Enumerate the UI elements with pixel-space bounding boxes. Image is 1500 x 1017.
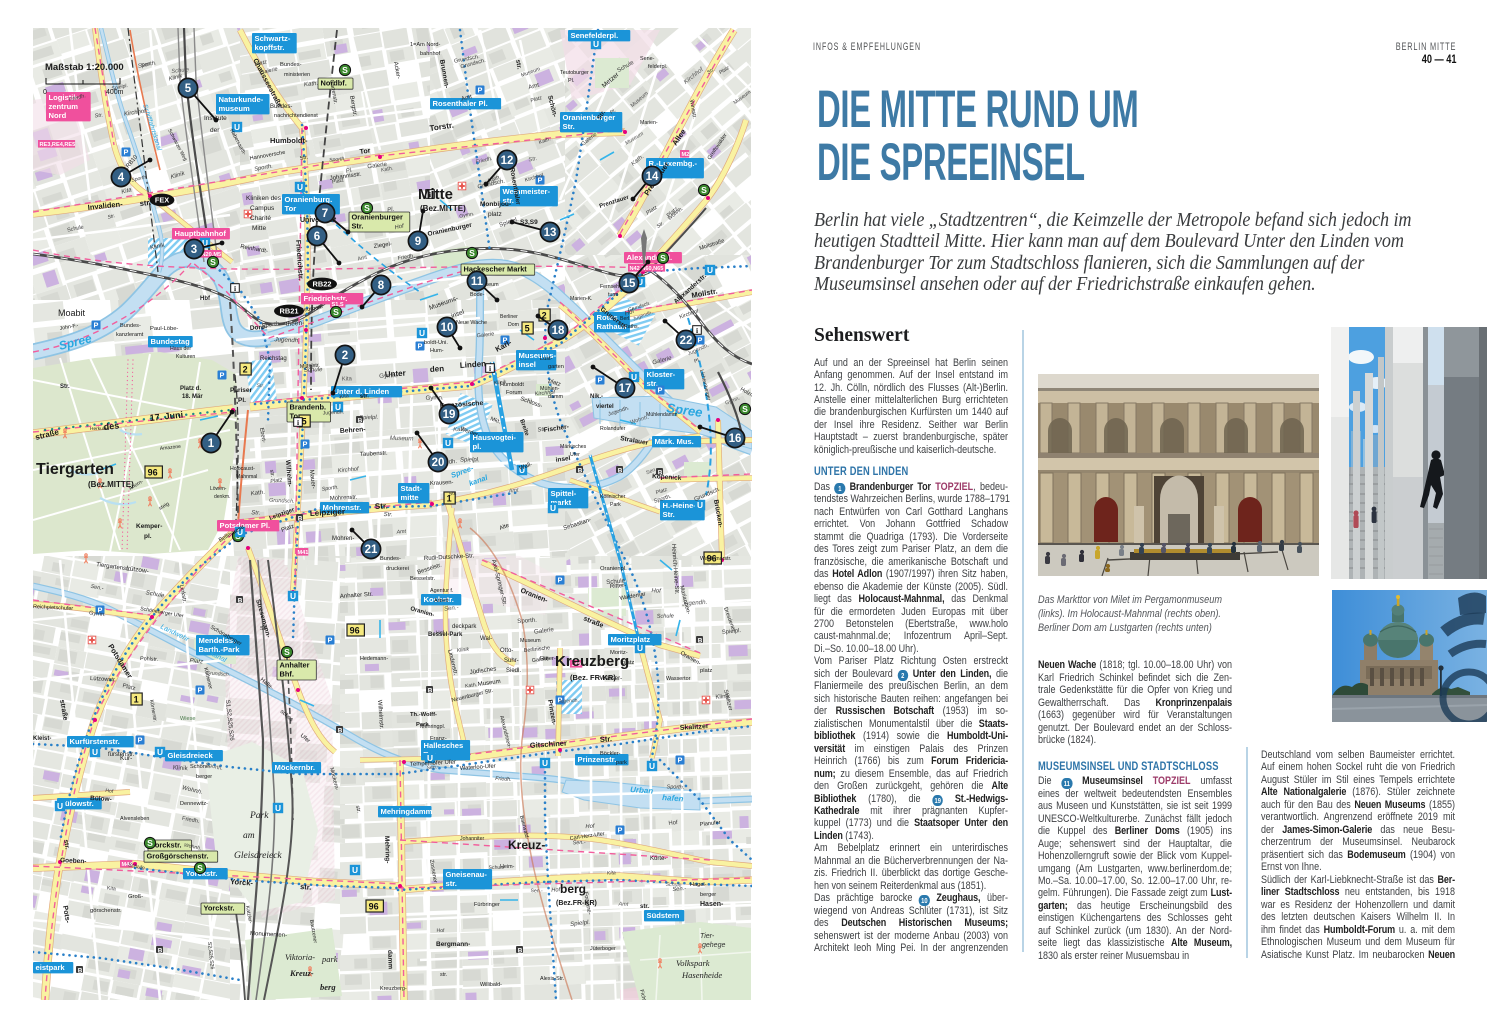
svg-text:P: P [198, 686, 203, 695]
svg-text:mitte: mitte [401, 493, 419, 502]
svg-text:i: i [234, 284, 236, 293]
svg-text:Str.: Str. [448, 490, 456, 497]
svg-text:21: 21 [365, 544, 378, 556]
svg-text:Schwartz-: Schwartz- [255, 34, 291, 43]
svg-text:P: P [478, 86, 483, 95]
svg-text:S: S [210, 257, 216, 267]
svg-text:P: P [658, 386, 663, 395]
svg-text:Hof: Hof [437, 928, 446, 934]
svg-text:Str.: Str. [663, 510, 675, 519]
svg-text:Pariser: Pariser [230, 387, 253, 394]
svg-text:Str.: Str. [256, 383, 264, 389]
svg-text:Bundes-: Bundes- [280, 62, 302, 68]
svg-text:20: 20 [432, 457, 445, 469]
svg-text:Siedl.: Siedl. [506, 668, 521, 674]
svg-text:görschenstr.: görschenstr. [90, 908, 122, 914]
svg-text:Mühlendamm: Mühlendamm [646, 412, 677, 418]
svg-text:96: 96 [350, 626, 360, 636]
svg-text:Kita: Kita [107, 885, 117, 892]
svg-text:Moritz-: Moritz- [610, 650, 628, 656]
svg-text:Otto-: Otto- [500, 648, 513, 654]
svg-text:Barth.-Park: Barth.-Park [199, 645, 241, 654]
svg-text:Suhr-: Suhr- [504, 658, 519, 664]
svg-text:insel: insel [519, 360, 536, 369]
svg-text:platz: platz [700, 668, 712, 674]
svg-text:Sen.-: Sen.- [573, 840, 586, 847]
svg-text:Museum: Museum [390, 435, 414, 443]
svg-text:9: 9 [415, 236, 421, 248]
svg-text:Schule: Schule [489, 865, 505, 871]
svg-text:Goeben-: Goeben- [60, 857, 87, 865]
svg-text:14: 14 [646, 171, 659, 183]
svg-text:str.: str. [360, 393, 370, 400]
svg-text:P: P [678, 756, 683, 765]
svg-text:str.: str. [640, 904, 649, 910]
svg-text:Hedemann-: Hedemann- [360, 656, 388, 662]
svg-text:park: park [321, 954, 338, 964]
svg-text:berg: berg [320, 982, 336, 992]
svg-text:Weinmeister-: Weinmeister- [503, 187, 551, 196]
svg-text:Bergmann-: Bergmann- [436, 941, 470, 948]
svg-text:Charité: Charité [250, 215, 271, 222]
svg-text:Besselstr.: Besselstr. [410, 576, 436, 582]
svg-text:P: P [124, 148, 129, 157]
svg-text:fürstenstr.: fürstenstr. [108, 752, 135, 758]
svg-text:Tor: Tor [285, 204, 297, 213]
svg-text:Hasenheide: Hasenheide [681, 970, 722, 980]
svg-text:S: S [342, 65, 348, 75]
svg-text:U: U [550, 503, 556, 513]
svg-text:RB22: RB22 [313, 280, 332, 289]
svg-text:Oranienpl.: Oranienpl. [600, 566, 627, 572]
svg-text:Fernseh-: Fernseh- [600, 284, 621, 290]
svg-text:S: S [469, 248, 475, 258]
svg-text:Rolandufer: Rolandufer [600, 426, 626, 432]
svg-text:Amt: Amt [617, 901, 628, 907]
svg-text:P: P [94, 321, 99, 330]
svg-text:18: 18 [552, 325, 565, 337]
svg-text:15: 15 [623, 278, 636, 290]
svg-text:Grundsch.: Grundsch. [269, 498, 295, 505]
svg-text:Berliner: Berliner [500, 314, 518, 320]
svg-text:Th.-Wolff-: Th.-Wolff- [410, 712, 437, 718]
svg-text:Hagel-: Hagel- [690, 882, 707, 888]
svg-text:3: 3 [191, 244, 197, 256]
svg-text:(Bez.MITTE): (Bez.MITTE) [420, 204, 466, 213]
svg-text:S: S [364, 203, 370, 213]
svg-text:damm: damm [386, 950, 394, 970]
svg-text:zentrum: zentrum [49, 102, 79, 111]
svg-text:Willibald-: Willibald- [480, 982, 502, 988]
svg-text:Krausen-: Krausen- [430, 480, 454, 487]
svg-text:Kreuz-: Kreuz- [508, 838, 545, 852]
svg-text:Körte-: Körte- [650, 856, 666, 862]
svg-text:Platz d.: Platz d. [180, 386, 201, 392]
svg-text:Kita: Kita [339, 393, 349, 400]
svg-text:ministerien: ministerien [284, 72, 310, 78]
svg-text:B: B [578, 467, 583, 474]
svg-text:Jugendh.: Jugendh. [323, 409, 345, 416]
svg-text:Bülow-: Bülow- [90, 795, 112, 803]
svg-text:Hbf: Hbf [200, 296, 211, 302]
svg-text:Moritzplatz: Moritzplatz [611, 635, 651, 644]
svg-text:Mehringdamm: Mehringdamm [381, 807, 433, 816]
svg-text:Alexis-Str.: Alexis-Str. [540, 976, 564, 982]
svg-text:B: B [338, 727, 343, 734]
svg-text:Bessel-Park: Bessel-Park [428, 632, 463, 638]
svg-text:Dennewitz-: Dennewitz- [180, 801, 208, 807]
svg-text:U: U [352, 865, 358, 875]
svg-text:str.: str. [139, 198, 151, 208]
svg-text:Bundes-: Bundes- [380, 556, 401, 562]
svg-text:Linden: Linden [460, 359, 487, 370]
svg-text:Bundes-: Bundes- [270, 104, 292, 110]
svg-text:Wiese: Wiese [180, 716, 196, 722]
svg-text:str.: str. [300, 882, 312, 892]
svg-text:S: S [147, 838, 153, 848]
svg-text:Spielpl.: Spielpl. [359, 415, 378, 421]
svg-text:eistpark: eistpark [36, 963, 66, 972]
svg-text:Stadt-: Stadt- [401, 484, 423, 493]
svg-text:S: S [701, 185, 707, 195]
svg-text:U: U [157, 747, 163, 757]
svg-text:Anhalter: Anhalter [280, 661, 310, 670]
svg-text:Mohren-: Mohren- [332, 536, 354, 542]
svg-text:Yorck-: Yorck- [230, 877, 254, 888]
svg-text:RB21: RB21 [280, 307, 299, 316]
svg-text:Groß-: Groß- [128, 894, 143, 900]
svg-text:Ufer: Ufer [570, 452, 580, 458]
svg-text:1=Am Nord-: 1=Am Nord- [410, 42, 440, 48]
svg-text:U: U [290, 591, 296, 601]
svg-text:17: 17 [619, 383, 632, 395]
svg-text:Reichstag: Reichstag [260, 356, 287, 362]
svg-text:N42,N60,N65: N42,N60,N65 [630, 266, 664, 272]
svg-text:Sen.-: Sen.- [531, 888, 544, 894]
svg-text:U: U [275, 803, 281, 813]
svg-text:Jugendh.: Jugendh. [558, 698, 579, 705]
svg-text:P: P [558, 576, 563, 585]
svg-text:pl.: pl. [144, 533, 152, 540]
svg-text:B: B [78, 967, 83, 974]
svg-text:Bode-: Bode- [470, 292, 485, 298]
svg-text:turm: turm [608, 292, 618, 298]
svg-text:Bhf.: Bhf. [280, 669, 294, 678]
svg-text:museum: museum [219, 104, 250, 113]
svg-text:P: P [220, 371, 225, 380]
svg-text:kanzleramt: kanzleramt [116, 332, 144, 338]
svg-text:Amt: Amt [508, 488, 520, 495]
svg-text:Mitte: Mitte [252, 225, 266, 232]
svg-text:Teutoburger: Teutoburger [560, 70, 589, 76]
svg-text:platz: platz [488, 211, 502, 218]
svg-text:U: U [92, 747, 98, 757]
svg-text:Agentur f.: Agentur f. [430, 588, 453, 594]
svg-text:P: P [598, 376, 603, 385]
svg-text:Schule: Schule [657, 613, 674, 619]
svg-text:96: 96 [148, 468, 158, 478]
svg-text:Bundestag: Bundestag [151, 337, 191, 346]
svg-text:B: B [518, 947, 523, 954]
svg-text:Arbeit: Arbeit [434, 598, 449, 604]
svg-text:U: U [637, 643, 643, 653]
svg-text:6: 6 [314, 231, 320, 243]
svg-text:P: P [418, 342, 423, 351]
svg-text:den: den [430, 364, 445, 374]
svg-text:Str.: Str. [384, 512, 393, 518]
svg-text:4: 4 [118, 172, 125, 184]
svg-text:Volkspark: Volkspark [676, 958, 710, 968]
svg-text:Str.: Str. [375, 501, 388, 511]
svg-text:Museum: Museum [520, 638, 541, 644]
svg-text:Kreuz-: Kreuz- [289, 968, 314, 978]
svg-text:(Bez.MITTE): (Bez.MITTE) [88, 480, 134, 489]
svg-text:gehege: gehege [702, 942, 725, 949]
svg-text:deckpark: deckpark [452, 624, 477, 630]
svg-text:Naturkunde-: Naturkunde- [219, 95, 264, 104]
svg-text:FEX: FEX [155, 196, 169, 205]
svg-text:Schule: Schule [304, 366, 323, 374]
svg-text:B: B [298, 515, 303, 522]
svg-text:Hasen-: Hasen- [700, 901, 724, 908]
svg-text:nachrichtendienst: nachrichtendienst [274, 113, 318, 119]
svg-text:i: i [696, 326, 698, 335]
svg-text:hafen: hafen [662, 793, 684, 803]
svg-text:S: S [197, 863, 203, 873]
svg-text:M2: M2 [682, 152, 690, 158]
svg-text:Mehringpl.: Mehringpl. [420, 724, 445, 730]
svg-text:P: P [303, 440, 308, 449]
svg-text:P: P [328, 636, 333, 645]
svg-text:Kemper-: Kemper- [136, 523, 162, 530]
svg-text:Johanniter: Johanniter [460, 836, 484, 842]
svg-text:am: am [243, 831, 255, 841]
svg-text:Oranienburger: Oranienburger [563, 113, 616, 122]
svg-text:viertel: viertel [596, 404, 614, 410]
svg-text:Jugendh.: Jugendh. [273, 336, 300, 344]
svg-text:Campus: Campus [250, 205, 275, 212]
svg-text:Str.: Str. [352, 221, 364, 230]
svg-text:Pl.: Pl. [238, 397, 246, 404]
svg-text:Alvensleben: Alvensleben [120, 816, 149, 822]
svg-text:str.: str. [440, 972, 447, 978]
svg-text:Str.: Str. [600, 734, 613, 744]
svg-text:Kleist-: Kleist- [33, 736, 51, 742]
svg-text:Kita: Kita [342, 376, 353, 382]
svg-text:Waldemarstr.: Waldemarstr. [700, 556, 732, 562]
svg-text:Hof: Hof [436, 630, 445, 636]
svg-text:i: i [489, 364, 491, 373]
svg-text:S: S [660, 253, 666, 263]
svg-text:Marien-K.: Marien-K. [570, 296, 593, 302]
svg-text:22: 22 [680, 335, 693, 347]
svg-text:Märkisches: Märkisches [560, 444, 587, 450]
svg-text:Nord: Nord [49, 111, 67, 120]
svg-text:Kulturen: Kulturen [176, 354, 195, 360]
svg-text:U: U [707, 265, 713, 275]
svg-text:Pl.: Pl. [568, 78, 574, 84]
svg-text:12: 12 [501, 155, 514, 167]
svg-text:bahnhof: bahnhof [420, 51, 441, 57]
svg-text:Gymn.: Gymn. [425, 394, 443, 402]
svg-text:M41: M41 [298, 550, 309, 556]
svg-text:Kreuzberg-: Kreuzberg- [380, 986, 407, 992]
svg-text:Sene-: Sene- [640, 56, 655, 62]
svg-text:Jüterboger: Jüterboger [590, 946, 616, 952]
svg-text:Sen.-: Sen.- [426, 764, 439, 771]
svg-text:park: park [616, 760, 627, 766]
svg-text:Franz-: Franz- [430, 736, 447, 742]
svg-text:B: B [238, 597, 243, 604]
svg-text:B: B [698, 637, 703, 644]
svg-text:RE3,RE4,RE5: RE3,RE4,RE5 [40, 142, 76, 148]
svg-text:Kita: Kita [607, 870, 616, 876]
svg-text:Lust-: Lust- [540, 356, 553, 362]
svg-text:Hallesches: Hallesches [424, 741, 464, 750]
svg-text:Möckernbr.: Möckernbr. [275, 763, 316, 772]
svg-text:Sporth.: Sporth. [666, 784, 684, 790]
svg-text:Mahnmal: Mahnmal [236, 474, 257, 480]
svg-text:Haus der: Haus der [170, 346, 191, 352]
svg-text:Raths.: Raths. [624, 324, 639, 330]
svg-text:Neue Wache: Neue Wache [456, 320, 487, 326]
svg-text:theen-: theen- [286, 320, 305, 328]
svg-text:Spittel-: Spittel- [551, 489, 577, 498]
svg-text:Maßstab 1:20.000: Maßstab 1:20.000 [45, 62, 124, 73]
svg-text:P: P [698, 336, 703, 345]
svg-text:garten: garten [548, 364, 564, 370]
svg-text:Friedh.: Friedh. [495, 776, 512, 783]
svg-text:Moabit: Moabit [58, 308, 86, 318]
svg-text:Großgörschenstr.: Großgörschenstr. [147, 852, 209, 861]
svg-text:Kurfürstenstr.: Kurfürstenstr. [70, 737, 120, 746]
svg-text:boldt-Uni.: boldt-Uni. [424, 340, 448, 346]
svg-text:Pl.: Pl. [387, 206, 395, 214]
svg-text:P: P [138, 736, 143, 745]
svg-text:B: B [428, 687, 433, 694]
svg-text:S: S [742, 404, 748, 414]
svg-text:Holocaust-: Holocaust- [230, 466, 255, 472]
svg-text:druckerei: druckerei [386, 566, 409, 572]
svg-text:U: U [542, 758, 548, 768]
svg-text:2: 2 [342, 350, 348, 362]
svg-text:S: S [333, 307, 339, 317]
svg-text:berg: berg [560, 882, 586, 896]
svg-text:Nik.-: Nik.- [590, 394, 603, 400]
svg-text:Str.: Str. [537, 426, 547, 433]
svg-text:Herkules: Herkules [90, 426, 110, 432]
svg-text:Bundes-: Bundes- [120, 323, 141, 329]
svg-text:13: 13 [544, 227, 557, 239]
svg-text:96: 96 [369, 902, 379, 912]
svg-text:Park: Park [249, 811, 269, 821]
svg-text:Brandenb.: Brandenb. [290, 403, 327, 412]
svg-text:kopffstr.: kopffstr. [255, 43, 285, 52]
svg-text:Gymn.: Gymn. [379, 372, 398, 380]
svg-text:U: U [57, 801, 63, 811]
svg-text:B: B [618, 467, 623, 474]
svg-text:U: U [649, 761, 655, 771]
svg-text:Oranienburg.: Oranienburg. [285, 195, 333, 204]
svg-text:felderpl.: felderpl. [648, 64, 667, 70]
svg-text:Humboldt-: Humboldt- [270, 136, 308, 145]
svg-text:pl.: pl. [473, 442, 482, 451]
svg-text:10: 10 [441, 322, 454, 334]
svg-text:7: 7 [322, 208, 328, 220]
svg-text:Str.: Str. [260, 626, 269, 632]
svg-text:1: 1 [134, 695, 139, 705]
svg-text:Fürbringer: Fürbringer [474, 902, 500, 908]
svg-text:Wassertor: Wassertor [666, 676, 691, 682]
svg-text:berger: berger [700, 892, 716, 898]
svg-text:H.-Heine-: H.-Heine- [663, 501, 697, 510]
svg-text:11: 11 [471, 276, 484, 288]
svg-text:Pohlstr.: Pohlstr. [140, 656, 158, 663]
svg-text:0: 0 [43, 89, 47, 96]
svg-text:Gneisenau-: Gneisenau- [446, 870, 488, 879]
svg-text:Leipziger: Leipziger [310, 507, 346, 518]
svg-text:der: der [210, 127, 220, 134]
svg-text:Hauptbahnhof: Hauptbahnhof [175, 229, 227, 238]
svg-text:Marien-: Marien- [640, 120, 658, 126]
svg-text:Kliniken des: Kliniken des [246, 195, 282, 202]
svg-text:Viktoria-: Viktoria- [285, 952, 315, 962]
svg-text:Wasser-: Wasser- [600, 676, 622, 682]
svg-text:Oranienburger: Oranienburger [352, 213, 403, 222]
svg-text:Sporth.: Sporth. [517, 617, 537, 625]
svg-text:B: B [158, 947, 163, 954]
svg-text:Forum: Forum [506, 390, 523, 396]
svg-text:U: U [593, 39, 599, 49]
svg-text:Klinik: Klinik [715, 693, 731, 701]
svg-text:Löwen-: Löwen- [210, 486, 227, 492]
svg-text:8: 8 [378, 280, 385, 292]
svg-text:i: i [297, 418, 299, 427]
svg-text:U: U [419, 328, 425, 338]
svg-text:19: 19 [443, 409, 456, 421]
svg-text:S: S [284, 647, 290, 657]
svg-text:Tier-: Tier- [700, 933, 715, 940]
svg-text:platz: platz [622, 660, 634, 666]
svg-text:Tiergarten: Tiergarten [36, 461, 114, 478]
svg-text:Str.: Str. [60, 384, 70, 390]
svg-text:Hum-: Hum- [430, 348, 444, 354]
svg-text:Spielpl.: Spielpl. [460, 457, 480, 463]
svg-text:Str.: Str. [251, 510, 260, 516]
svg-text:Köllnischer: Köllnischer [600, 494, 626, 500]
svg-text:Kath.: Kath. [453, 427, 467, 434]
svg-text:Str.: Str. [563, 122, 575, 131]
svg-text:5: 5 [525, 324, 530, 334]
svg-text:Kloster-: Kloster- [647, 370, 676, 379]
svg-text:5: 5 [185, 83, 192, 95]
svg-text:Yorckstr.: Yorckstr. [204, 904, 235, 913]
svg-text:berger: berger [196, 774, 212, 780]
svg-text:Urban: Urban [630, 785, 654, 796]
svg-text:Mehring-: Mehring- [383, 836, 391, 864]
svg-text:U: U [297, 182, 303, 192]
svg-text:P: P [618, 826, 623, 835]
svg-text:denkm.: denkm. [214, 494, 230, 500]
svg-text:Park: Park [610, 502, 621, 508]
svg-text:16: 16 [729, 433, 742, 445]
svg-text:Gleisdreieck: Gleisdreieck [168, 751, 214, 760]
svg-text:Gleisdreieck: Gleisdreieck [234, 851, 282, 861]
svg-text:Hof: Hof [668, 820, 678, 827]
svg-text:Schule: Schule [665, 882, 681, 889]
svg-text:Rosenthaler Pl.: Rosenthaler Pl. [433, 99, 488, 108]
svg-text:1: 1 [208, 438, 215, 450]
